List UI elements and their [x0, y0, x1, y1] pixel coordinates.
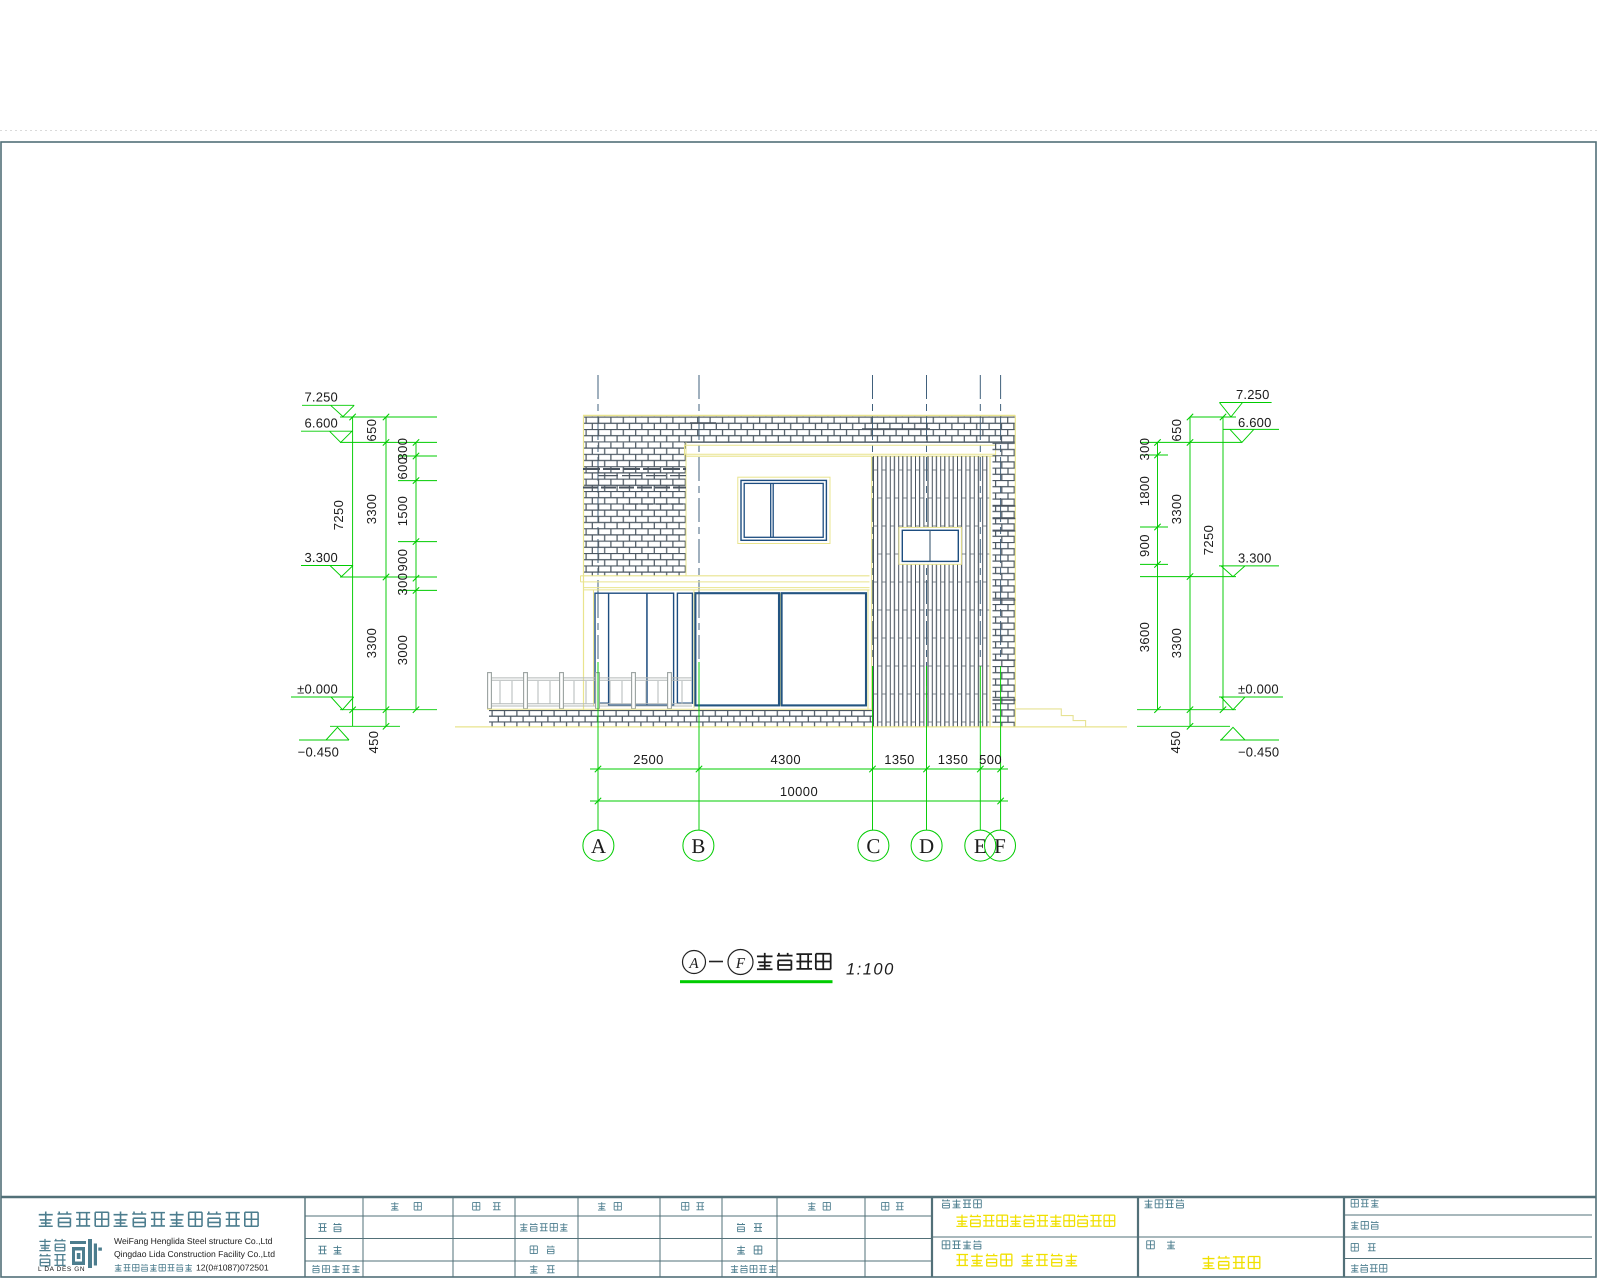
- svg-text:1800: 1800: [1137, 476, 1152, 507]
- svg-text:3000: 3000: [395, 635, 410, 666]
- svg-text:Qingdao Lida Construction Faci: Qingdao Lida Construction Facility Co.,L…: [114, 1249, 275, 1259]
- svg-text:1500: 1500: [395, 496, 410, 527]
- svg-text:500: 500: [979, 752, 1002, 767]
- svg-text:300: 300: [395, 573, 410, 596]
- svg-text:450: 450: [366, 731, 381, 754]
- svg-text:1350: 1350: [938, 752, 969, 767]
- svg-text:WeiFang Henglida Steel structu: WeiFang Henglida Steel structure Co.,Ltd: [114, 1236, 273, 1246]
- svg-text:10000: 10000: [780, 784, 818, 799]
- svg-text:300: 300: [1137, 438, 1152, 461]
- svg-text:3300: 3300: [364, 494, 379, 525]
- svg-text:A: A: [591, 834, 607, 858]
- svg-text:3300: 3300: [1169, 494, 1184, 525]
- svg-text:F: F: [994, 834, 1006, 858]
- svg-text:F: F: [735, 956, 746, 972]
- svg-text:12(0#1087)072501: 12(0#1087)072501: [196, 1263, 269, 1273]
- svg-text:3.300: 3.300: [304, 550, 338, 565]
- svg-text:7.250: 7.250: [304, 390, 338, 405]
- svg-text:4300: 4300: [771, 752, 802, 767]
- svg-text:3600: 3600: [1137, 622, 1152, 653]
- svg-text:±0.000: ±0.000: [1238, 681, 1279, 696]
- svg-text:B: B: [691, 834, 705, 858]
- svg-text:450: 450: [1168, 731, 1183, 754]
- svg-text:−0.450: −0.450: [1238, 745, 1279, 760]
- svg-text:900: 900: [395, 549, 410, 572]
- svg-text:−0.450: −0.450: [298, 745, 339, 760]
- svg-text:L DA DES GN: L DA DES GN: [38, 1266, 85, 1273]
- svg-text:3300: 3300: [1169, 628, 1184, 659]
- svg-text:650: 650: [364, 419, 379, 442]
- svg-text:3300: 3300: [364, 628, 379, 659]
- svg-text:650: 650: [1169, 419, 1184, 442]
- svg-text:1350: 1350: [884, 752, 915, 767]
- svg-text:3.300: 3.300: [1238, 550, 1272, 565]
- svg-text:±0.000: ±0.000: [297, 681, 338, 696]
- svg-text:6.600: 6.600: [1238, 415, 1272, 430]
- svg-text:7250: 7250: [331, 500, 346, 531]
- svg-text:900: 900: [1137, 534, 1152, 557]
- svg-text:1:100: 1:100: [846, 961, 895, 979]
- svg-text:2500: 2500: [633, 752, 664, 767]
- svg-text:D: D: [919, 834, 934, 858]
- svg-text:600: 600: [395, 457, 410, 480]
- svg-text:A: A: [688, 956, 699, 972]
- svg-text:C: C: [866, 834, 880, 858]
- svg-text:6.600: 6.600: [304, 416, 338, 431]
- svg-text:7250: 7250: [1201, 525, 1216, 556]
- svg-text:7.250: 7.250: [1236, 387, 1270, 402]
